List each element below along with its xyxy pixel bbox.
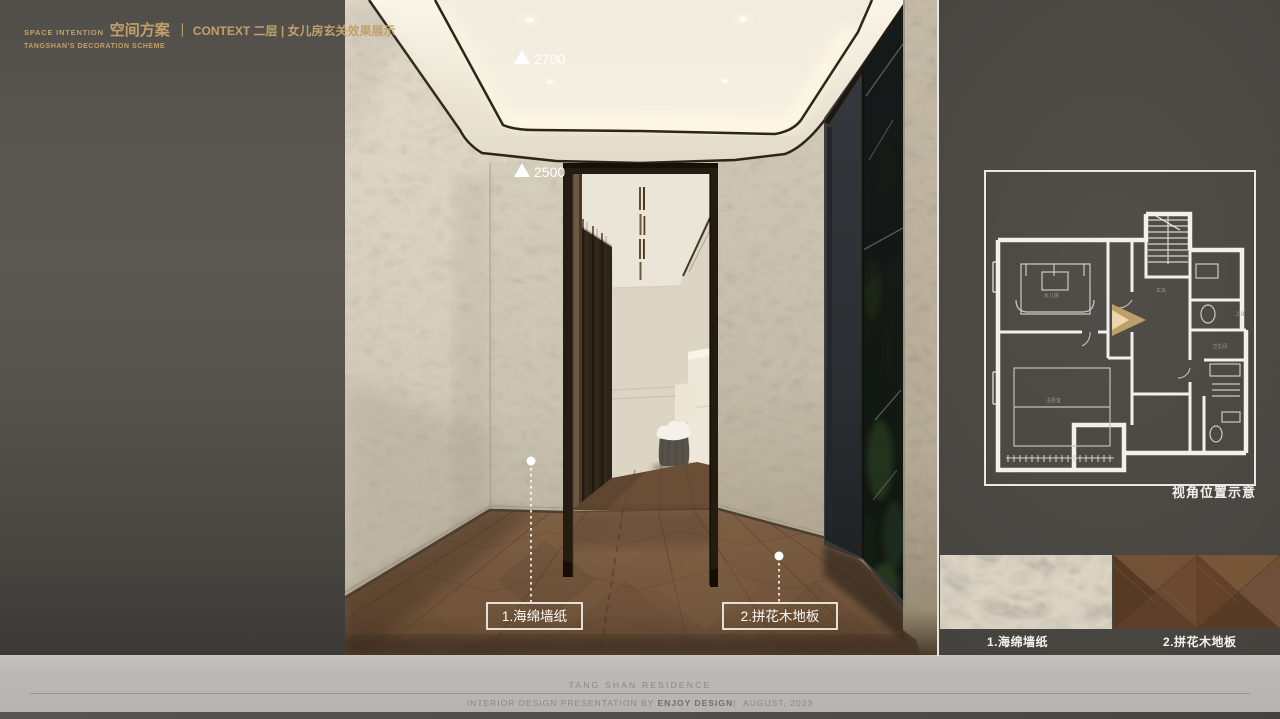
svg-text:2500: 2500 bbox=[534, 164, 565, 180]
svg-text:女儿房: 女儿房 bbox=[1044, 292, 1059, 299]
svg-text:2.拼花木地板: 2.拼花木地板 bbox=[741, 609, 820, 624]
svg-text:主卧室: 主卧室 bbox=[1046, 397, 1061, 404]
svg-text:2.9: 2.9 bbox=[1236, 312, 1245, 318]
svg-text:1.海绵墙纸: 1.海绵墙纸 bbox=[502, 609, 568, 624]
svg-text:玄关: 玄关 bbox=[1156, 287, 1166, 294]
svg-text:2700: 2700 bbox=[534, 51, 565, 67]
svg-text:卫生间: 卫生间 bbox=[1212, 343, 1227, 350]
